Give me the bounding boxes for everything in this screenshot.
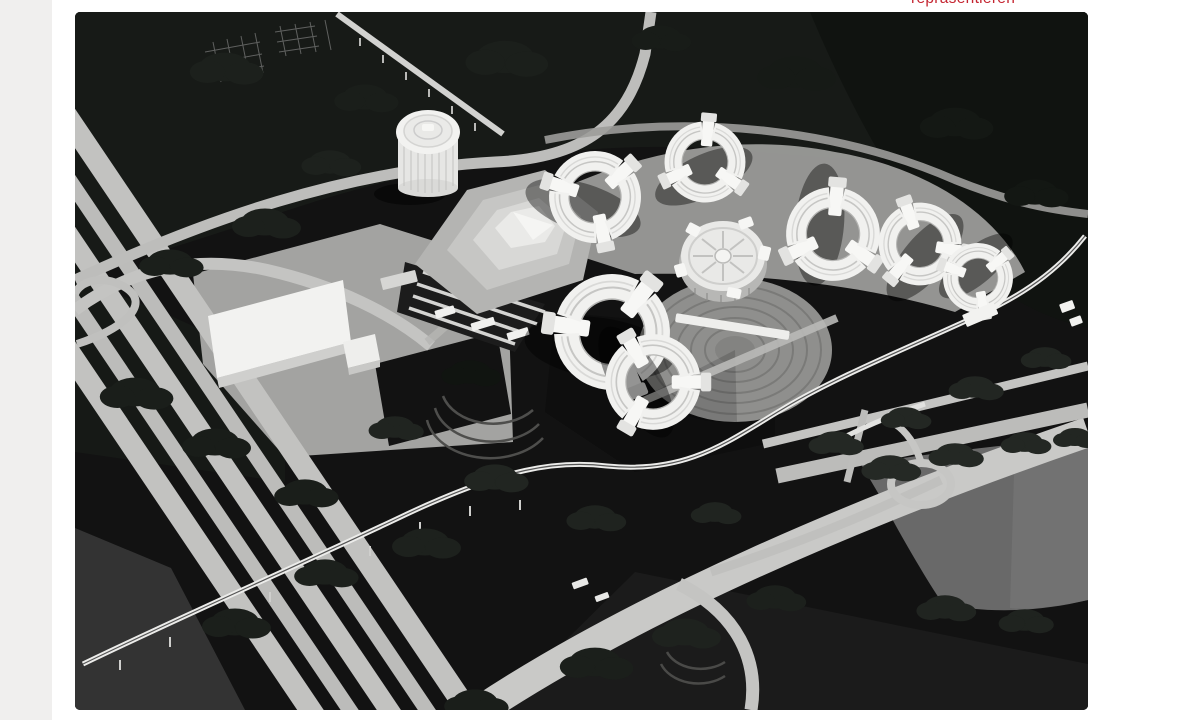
caption-text: repräsentieren — [911, 0, 1015, 8]
left-gutter — [0, 0, 52, 720]
model-photograph — [75, 12, 1088, 710]
document-page: repräsentieren — [0, 0, 1200, 720]
